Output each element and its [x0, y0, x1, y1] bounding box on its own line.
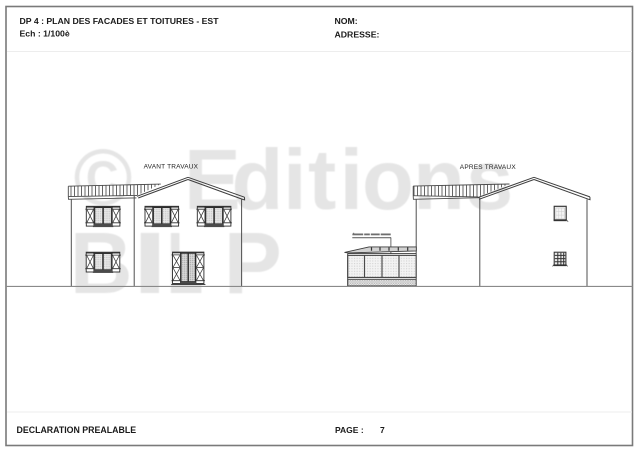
svg-text:DP 4 : PLAN DES FACADES ET TOI: DP 4 : PLAN DES FACADES ET TOITURES - ES…	[20, 16, 220, 26]
svg-text:Ech : 1/100è: Ech : 1/100è	[20, 29, 70, 39]
svg-text:DECLARATION PREALABLE: DECLARATION PREALABLE	[17, 425, 137, 435]
svg-text:AVANT TRAVAUX: AVANT TRAVAUX	[144, 164, 199, 171]
svg-text:n: n	[413, 133, 465, 228]
svg-text:i: i	[340, 133, 364, 228]
svg-text:PAGE :: PAGE :	[335, 425, 364, 435]
svg-text:I: I	[132, 215, 167, 312]
svg-text:i: i	[283, 133, 307, 228]
svg-text:ADRESSE:: ADRESSE:	[335, 29, 380, 39]
svg-text:7: 7	[380, 425, 385, 435]
svg-text:P: P	[224, 215, 282, 312]
svg-text:o: o	[362, 133, 414, 228]
svg-text:t: t	[308, 133, 336, 228]
svg-text:s: s	[466, 133, 513, 228]
svg-text:d: d	[232, 133, 284, 228]
svg-text:NOM:: NOM:	[335, 16, 358, 26]
svg-text:APRES TRAVAUX: APRES TRAVAUX	[460, 164, 517, 171]
